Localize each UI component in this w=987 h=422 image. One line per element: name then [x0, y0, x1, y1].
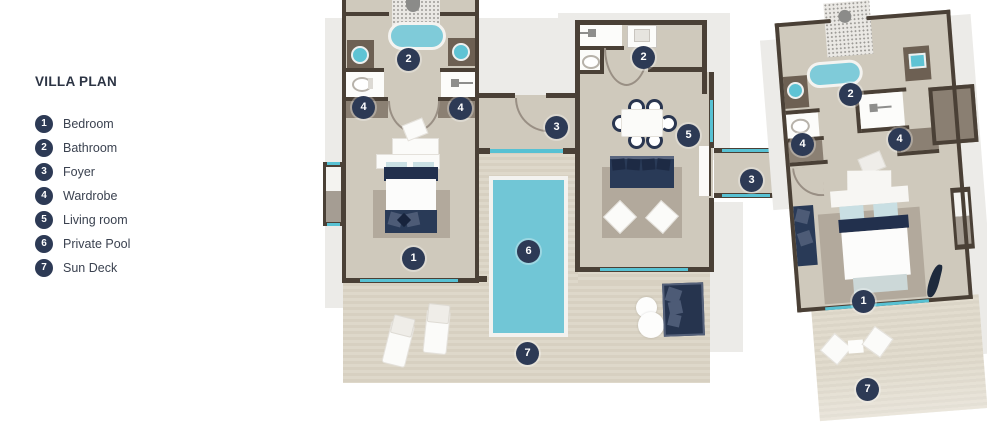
sun-lounger: [421, 303, 452, 355]
legend-item-foyer: 3 Foyer: [35, 163, 130, 181]
wall: [342, 0, 346, 283]
sink: [351, 46, 369, 64]
shower-head: [869, 104, 878, 113]
sofa-cushion: [611, 158, 625, 170]
legend-items: 1 Bedroom 2 Bathroom 3 Foyer 4 Wardrobe …: [35, 115, 130, 277]
badge-wardrobe-right: 4: [791, 133, 814, 156]
legend-label: Living room: [63, 213, 128, 227]
legend-item-sun-deck: 7 Sun Deck: [35, 259, 130, 277]
legend-item-wardrobe: 4 Wardrobe: [35, 187, 130, 205]
legend: VILLA PLAN 1 Bedroom 2 Bathroom 3 Foyer …: [35, 74, 130, 283]
legend-label: Bathroom: [63, 141, 117, 155]
sofa-cushion: [642, 158, 656, 170]
legend-badge: 2: [35, 139, 53, 157]
wall: [475, 0, 479, 283]
sofa-cushion: [656, 158, 670, 171]
window-strip: [722, 194, 770, 197]
legend-label: Bedroom: [63, 117, 114, 131]
badge-sun-deck-right: 7: [856, 378, 879, 401]
window-seat-base: [326, 191, 341, 222]
legend-item-living-room: 5 Living room: [35, 211, 130, 229]
shower-room: [580, 25, 622, 46]
daybed: [662, 282, 705, 336]
badge-bathroom-right: 2: [839, 83, 862, 106]
window-strip: [490, 149, 563, 153]
badge-bedroom-right: 1: [852, 290, 875, 313]
legend-label: Private Pool: [63, 237, 130, 251]
sink: [908, 53, 926, 69]
badge-living-room: 5: [677, 124, 700, 147]
legend-badge: 7: [35, 259, 53, 277]
toilet: [582, 55, 600, 69]
lounger-back: [427, 303, 451, 324]
console-table: [699, 146, 711, 196]
toilet-tank: [368, 78, 373, 89]
sofa-cushion: [627, 158, 641, 170]
badge-bathroom-mid: 2: [632, 46, 655, 69]
legend-item-bedroom: 1 Bedroom: [35, 115, 130, 133]
window-strip: [600, 268, 688, 271]
window-strip: [327, 223, 340, 226]
deck-table: [848, 340, 864, 354]
wall: [479, 93, 515, 98]
right-villa: [758, 0, 987, 422]
bed-duvet: [841, 228, 910, 280]
legend-badge: 6: [35, 235, 53, 253]
page-title: VILLA PLAN: [35, 74, 130, 89]
dining-table: [621, 109, 663, 137]
legend-label: Sun Deck: [63, 261, 117, 275]
legend-item-bathroom: 2 Bathroom: [35, 139, 130, 157]
badge-wardrobe-left: 4: [352, 96, 375, 119]
window-strip: [722, 149, 774, 152]
daybed-pillow: [667, 313, 681, 327]
window-strip: [360, 279, 458, 282]
badge-foyer-left: 3: [545, 116, 568, 139]
window-strip: [710, 100, 713, 142]
legend-item-private-pool: 6 Private Pool: [35, 235, 130, 253]
wall: [440, 12, 475, 16]
legend-label: Foyer: [63, 165, 95, 179]
shower-head: [451, 79, 459, 87]
legend-badge: 5: [35, 211, 53, 229]
window-seat-top: [326, 167, 341, 191]
wall: [648, 67, 707, 72]
badge-sun-deck-left: 7: [516, 342, 539, 365]
villa-plan-page: VILLA PLAN 1 Bedroom 2 Bathroom 3 Foyer …: [0, 0, 987, 422]
outdoor-shower-floor: [823, 0, 873, 57]
badge-foyer-right: 3: [740, 169, 763, 192]
backdrop-middle-right: [710, 202, 743, 352]
badge-private-pool: 6: [517, 240, 540, 263]
badge-wardrobe-left: 4: [449, 97, 472, 120]
shower-arm: [459, 82, 473, 84]
bed-duvet: [386, 179, 436, 211]
shower-head: [588, 29, 596, 37]
window-strip: [327, 162, 340, 165]
wall: [702, 20, 707, 94]
left-villa: [342, 0, 479, 283]
badge-bedroom-left: 1: [402, 247, 425, 270]
legend-badge: 4: [35, 187, 53, 205]
bathtub: [388, 22, 446, 50]
pouf: [638, 312, 664, 338]
badge-bathroom-left: 2: [397, 48, 420, 71]
badge-wardrobe-right: 4: [888, 128, 911, 151]
shower-room: [859, 92, 906, 129]
legend-badge: 1: [35, 115, 53, 133]
sink: [452, 43, 470, 61]
legend-badge: 3: [35, 163, 53, 181]
basin: [634, 29, 650, 42]
wall: [546, 93, 578, 98]
wall: [580, 70, 604, 74]
wall: [709, 198, 714, 272]
legend-label: Wardrobe: [63, 189, 117, 203]
wall: [346, 12, 389, 16]
